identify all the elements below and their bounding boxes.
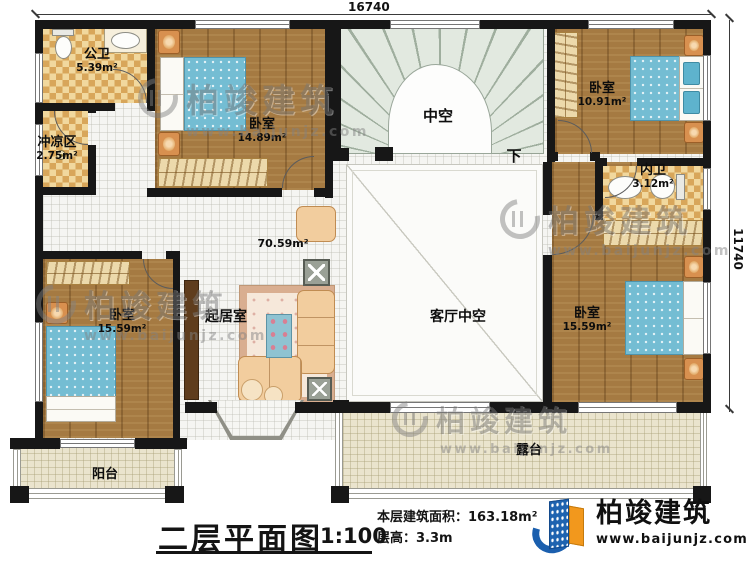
balcony-rail bbox=[13, 488, 182, 499]
room-label-ensuite-bath: 内卫 3.12m² bbox=[632, 164, 673, 190]
bed-pillows bbox=[160, 57, 184, 131]
railing-post bbox=[331, 486, 349, 503]
wall bbox=[43, 103, 115, 111]
dimension-right-value: 11740 bbox=[731, 228, 745, 270]
room-area: 5.39m² bbox=[76, 63, 117, 75]
window bbox=[578, 402, 677, 413]
nightstand bbox=[46, 302, 68, 324]
dimension-line-right bbox=[729, 20, 730, 412]
window bbox=[35, 53, 43, 103]
wall bbox=[35, 187, 96, 195]
railing-post bbox=[333, 400, 349, 413]
plan-info: 本层建筑面积：163.18m² 层高：3.3m bbox=[377, 508, 537, 550]
wall bbox=[173, 258, 180, 438]
stairs-down-label: 下 bbox=[506, 148, 521, 165]
window bbox=[703, 168, 711, 210]
wall bbox=[547, 28, 555, 162]
bed bbox=[630, 56, 680, 121]
floor-plan-canvas: 公卫 5.39m² 冲凉区 2.75m² 卧室 14.89m² 卧室 10.91… bbox=[0, 0, 750, 567]
wall bbox=[147, 28, 155, 111]
wall bbox=[547, 152, 558, 161]
wall bbox=[325, 28, 333, 198]
room-label-living-void: 客厅中空 bbox=[430, 310, 486, 326]
wardrobe bbox=[46, 261, 130, 285]
room-name: 客厅中空 bbox=[430, 310, 486, 326]
brand-logo-icon bbox=[532, 500, 588, 556]
bed-pillows bbox=[46, 396, 116, 422]
balcony-rail bbox=[13, 449, 21, 491]
bed bbox=[46, 326, 116, 398]
room-label-public-bath: 公卫 5.39m² bbox=[76, 48, 117, 74]
room-name: 卧室 bbox=[563, 307, 612, 322]
wall bbox=[88, 103, 96, 113]
coffee-table bbox=[266, 314, 292, 358]
title-underline bbox=[156, 551, 372, 554]
room-label-bedroom-right: 卧室 15.59m² bbox=[563, 307, 612, 333]
toilet-icon bbox=[55, 36, 72, 59]
nightstand bbox=[684, 358, 704, 380]
brand-logo-text: 柏竣建筑 www.baijunjz.com bbox=[596, 500, 748, 547]
living-room-void bbox=[346, 164, 543, 402]
railing-post bbox=[10, 486, 29, 503]
wardrobe bbox=[603, 220, 703, 246]
room-label-bedroom-top: 卧室 14.89m² bbox=[238, 118, 287, 144]
room-name: 中空 bbox=[423, 108, 453, 125]
wall bbox=[147, 188, 282, 197]
room-label-bedroom-left: 卧室 15.59m² bbox=[98, 309, 147, 335]
dimension-line-top bbox=[35, 14, 711, 15]
wall bbox=[135, 438, 187, 449]
room-name: 公卫 bbox=[76, 48, 117, 63]
floor-area-line: 本层建筑面积：163.18m² bbox=[377, 508, 537, 529]
railing-post bbox=[165, 486, 184, 503]
window bbox=[60, 439, 135, 448]
logo-building-side-icon bbox=[569, 506, 584, 547]
wall bbox=[43, 251, 142, 259]
balcony-rail bbox=[174, 449, 182, 491]
room-area: 15.59m² bbox=[563, 322, 612, 334]
wall bbox=[595, 158, 603, 220]
end-table bbox=[303, 259, 330, 286]
room-area: 2.75m² bbox=[36, 151, 77, 163]
bed-cushion bbox=[683, 62, 700, 85]
floor-height-line: 层高：3.3m bbox=[377, 529, 537, 550]
end-table bbox=[307, 377, 332, 401]
wall bbox=[333, 28, 341, 152]
nightstand bbox=[684, 35, 704, 56]
wall bbox=[333, 148, 349, 161]
wall bbox=[185, 402, 217, 413]
wall bbox=[543, 162, 552, 215]
bed bbox=[625, 281, 684, 355]
wall bbox=[677, 402, 711, 413]
window bbox=[35, 322, 43, 402]
room-area: 15.59m² bbox=[98, 324, 147, 336]
room-name: 卧室 bbox=[578, 82, 627, 97]
wall bbox=[314, 188, 333, 197]
room-name: 卧室 bbox=[98, 309, 147, 324]
nightstand bbox=[684, 122, 704, 143]
room-label-sitting: 起居室 bbox=[205, 310, 247, 326]
room-area: 14.89m² bbox=[238, 133, 287, 145]
room-name: 内卫 bbox=[632, 164, 673, 179]
brand-logo: 柏竣建筑 www.baijunjz.com bbox=[532, 500, 748, 556]
terrace-rail bbox=[335, 412, 343, 490]
wardrobe bbox=[553, 32, 578, 118]
room-name: 阳台 bbox=[92, 468, 118, 483]
wardrobe bbox=[158, 158, 268, 187]
wall bbox=[543, 255, 552, 402]
bed-pillows bbox=[683, 281, 704, 355]
ottoman bbox=[241, 379, 263, 401]
room-label-balcony: 阳台 bbox=[92, 468, 118, 483]
room-label-stair-void: 中空 bbox=[423, 108, 453, 125]
toilet-tank-icon bbox=[52, 29, 74, 36]
toilet-tank-icon bbox=[676, 174, 685, 200]
window bbox=[195, 20, 290, 29]
dimension-top-value: 16740 bbox=[348, 0, 390, 14]
tv-cabinet bbox=[184, 280, 199, 400]
window bbox=[703, 282, 711, 354]
window bbox=[390, 20, 480, 29]
room-label-terrace: 露台 bbox=[516, 444, 542, 459]
window bbox=[390, 402, 490, 413]
room-label-bedroom-topright: 卧室 10.91m² bbox=[578, 82, 627, 108]
bed-cushion bbox=[683, 91, 700, 114]
brand-url: www.baijunjz.com bbox=[596, 532, 748, 547]
room-name: 冲凉区 bbox=[36, 136, 77, 151]
hall-area-label: 70.59m² bbox=[257, 238, 308, 250]
sofa bbox=[297, 290, 335, 374]
wall bbox=[88, 145, 96, 187]
room-name: 露台 bbox=[516, 444, 542, 459]
window bbox=[588, 20, 674, 29]
room-area: 3.12m² bbox=[632, 179, 673, 191]
sink-icon bbox=[111, 32, 140, 49]
nightstand bbox=[158, 132, 180, 156]
window bbox=[703, 55, 711, 121]
wall bbox=[10, 438, 60, 449]
room-label-shower: 冲凉区 2.75m² bbox=[36, 136, 77, 162]
logo-building-icon bbox=[549, 499, 569, 550]
room-name: 起居室 bbox=[205, 310, 247, 326]
wall bbox=[490, 402, 578, 413]
nightstand bbox=[158, 30, 180, 54]
nightstand bbox=[684, 256, 704, 278]
brand-name: 柏竣建筑 bbox=[596, 500, 748, 527]
room-area: 10.91m² bbox=[578, 97, 627, 109]
wall bbox=[375, 147, 393, 161]
terrace-rail bbox=[700, 412, 707, 490]
room-name: 卧室 bbox=[238, 118, 287, 133]
